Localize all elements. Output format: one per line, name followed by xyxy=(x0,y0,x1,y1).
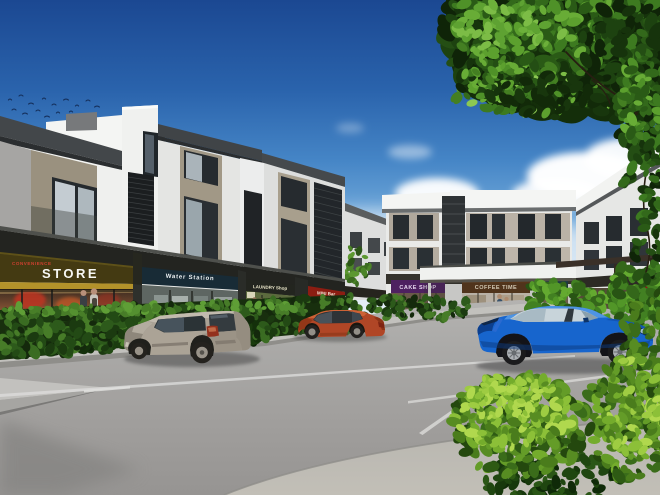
svg-text:STORE: STORE xyxy=(42,266,99,281)
